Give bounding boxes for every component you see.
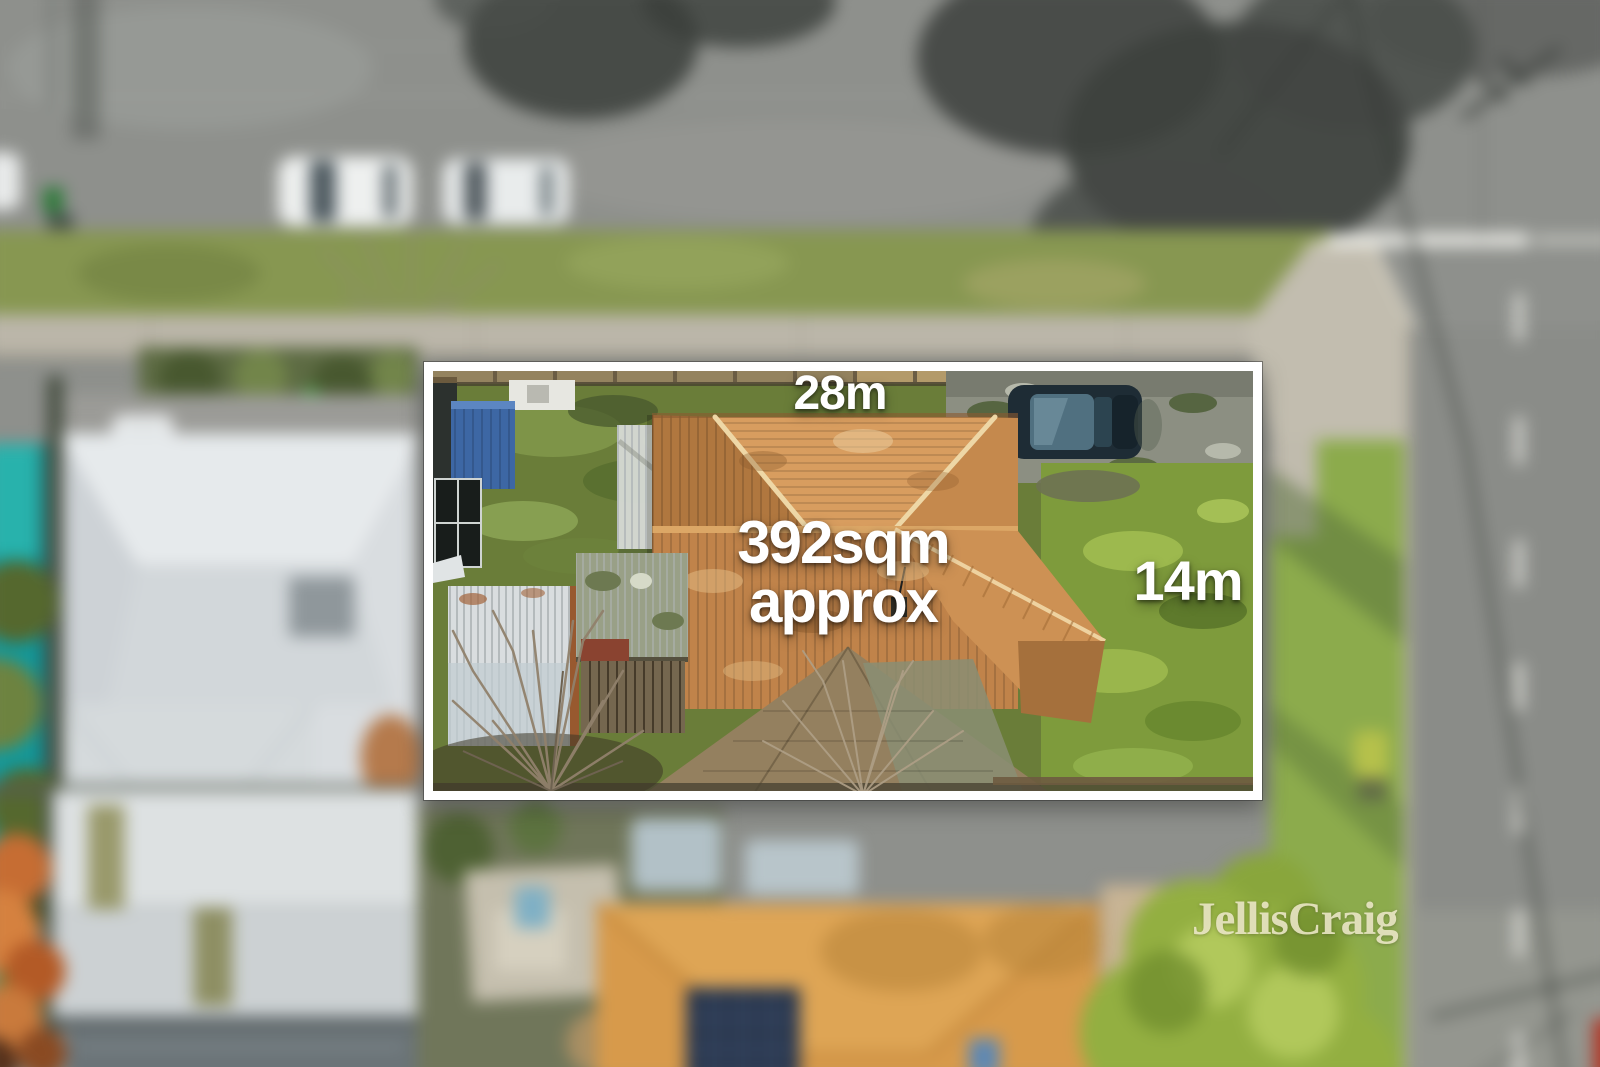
side-label: 14m: [1103, 548, 1273, 613]
red-object: [1594, 1018, 1600, 1067]
area-label-line2: approx: [693, 573, 993, 632]
weathered-shed: [576, 553, 688, 733]
agency-watermark: JellisCraig: [1192, 892, 1452, 946]
bottom-band: [0, 784, 1400, 1067]
area-label: 392sqm approx: [693, 514, 993, 632]
parked-car-driveway: [1008, 385, 1162, 459]
area-label-line1: 392sqm: [693, 514, 993, 573]
grass-verge: [0, 227, 1331, 359]
orange-roof-house: [597, 903, 1106, 1067]
frontage-label: 28m: [755, 366, 925, 421]
wheelie-bin: [1354, 731, 1389, 778]
aerial-property-photo: 28m 392sqm approx 14m JellisCraig: [0, 0, 1600, 1067]
